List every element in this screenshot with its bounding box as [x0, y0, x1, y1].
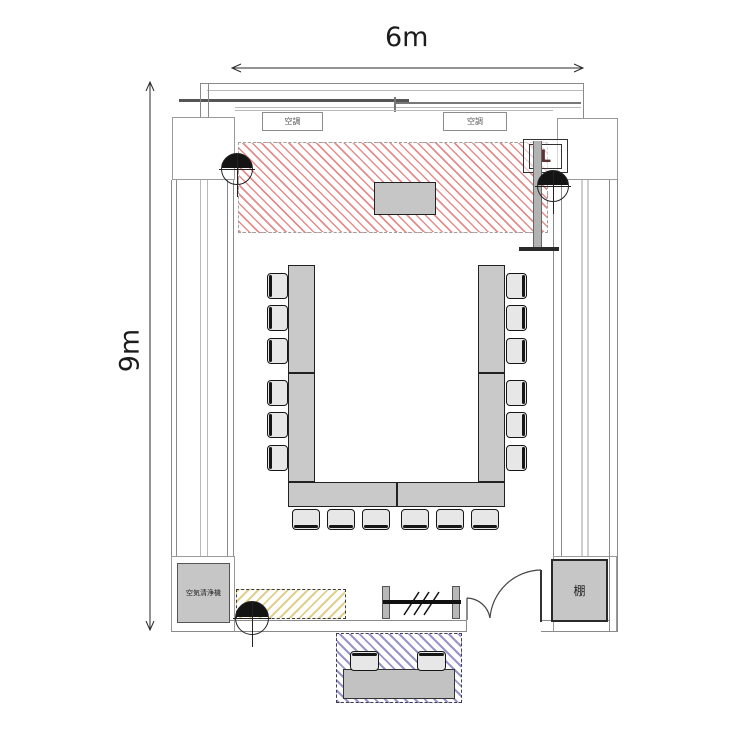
floor-plan: 6m 9m [0, 0, 750, 750]
meeting-table [288, 482, 397, 507]
aircon-2-label: 空調 [467, 116, 483, 127]
coat-rack-bar [383, 600, 461, 604]
door-leaf [540, 570, 542, 622]
window-pane-left [179, 99, 409, 102]
aircon-unit-2: 空調 [443, 112, 507, 131]
speaker-icon [537, 170, 569, 202]
screen-stand-foot [519, 247, 559, 251]
chair [267, 273, 288, 299]
door-swing-arcs [467, 570, 541, 620]
meeting-table [478, 265, 505, 373]
chair [267, 412, 288, 438]
chair [471, 509, 499, 530]
chair [267, 305, 288, 331]
air-purifier: 空気清浄機 [177, 563, 230, 623]
meeting-table [478, 373, 505, 482]
meeting-table [288, 373, 315, 482]
waiting-bench-table [343, 669, 455, 699]
chair [506, 380, 527, 406]
chair [506, 273, 527, 299]
aircon-unit-1: 空調 [262, 112, 323, 131]
shelf-label: 棚 [573, 582, 585, 599]
air-purifier-label: 空気清浄機 [186, 588, 221, 598]
chair [267, 338, 288, 364]
chair [436, 509, 464, 530]
chair [292, 509, 320, 530]
chair [506, 412, 527, 438]
chair [267, 380, 288, 406]
meeting-table [397, 482, 505, 507]
meeting-table [288, 265, 315, 373]
chair [362, 509, 390, 530]
speaker-icon [235, 601, 269, 635]
aircon-1-label: 空調 [285, 116, 301, 127]
chair [506, 338, 527, 364]
shelf: 棚 [551, 559, 608, 622]
width-dimension-label: 6m [385, 22, 428, 53]
equipment-box: L [523, 139, 568, 173]
chair [327, 509, 355, 530]
chair [417, 651, 446, 671]
speaker-icon [221, 153, 253, 185]
chair [506, 305, 527, 331]
projector-table [374, 182, 436, 215]
window-pane-right [395, 102, 581, 104]
height-dimension-label: 9m [115, 321, 146, 381]
chair [506, 445, 527, 471]
chair [267, 445, 288, 471]
chair [350, 651, 379, 671]
chair [401, 509, 429, 530]
